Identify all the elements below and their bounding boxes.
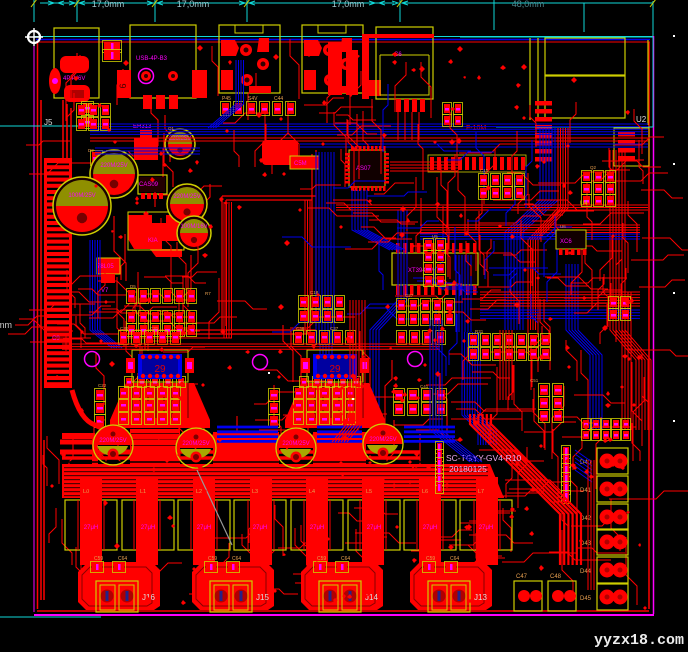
svg-text:L7: L7 [478, 489, 484, 495]
svg-text:C64: C64 [118, 556, 127, 562]
svg-text:17,0mm: 17,0mm [177, 0, 210, 9]
svg-text:L2: L2 [196, 489, 202, 495]
svg-text:XC6: XC6 [560, 239, 572, 245]
svg-text:C44: C44 [274, 96, 283, 102]
svg-text:U5: U5 [432, 234, 438, 239]
svg-text:C59: C59 [208, 556, 217, 562]
svg-text:L5: L5 [366, 489, 372, 495]
svg-text:J5: J5 [44, 118, 53, 127]
svg-text:U2: U2 [636, 115, 647, 124]
svg-text:J14: J14 [365, 593, 378, 602]
svg-text:S4V: S4V [248, 96, 258, 102]
svg-text:D41: D41 [580, 488, 592, 494]
svg-text:AS07: AS07 [356, 166, 371, 172]
svg-text:27μH: 27μH [141, 525, 155, 531]
svg-text:100M/16V: 100M/16V [180, 224, 207, 230]
svg-text:100M/25V: 100M/25V [68, 193, 95, 199]
svg-text:F-10M: F-10M [466, 125, 486, 132]
svg-text:C27: C27 [405, 293, 414, 298]
svg-text:P45: P45 [222, 96, 231, 102]
svg-text:D2: D2 [88, 148, 94, 153]
svg-text:27μH: 27μH [197, 525, 211, 531]
svg-text:C64: C64 [341, 556, 350, 562]
svg-text:Q1: Q1 [168, 126, 175, 131]
svg-text:17,0mm: 17,0mm [332, 0, 365, 9]
svg-text:C22: C22 [98, 383, 107, 388]
svg-text:C59: C59 [317, 556, 326, 562]
svg-text:SC-TGYY-GV4-R10: SC-TGYY-GV4-R10 [446, 453, 522, 463]
svg-text:L3: L3 [252, 489, 258, 495]
svg-text:27μH: 27μH [423, 525, 437, 531]
svg-text:17,0mm: 17,0mm [92, 0, 125, 9]
svg-text:29: 29 [329, 364, 341, 375]
svg-text:L4: L4 [309, 489, 315, 495]
svg-text:C64: C64 [450, 556, 459, 562]
svg-text:D45: D45 [580, 596, 592, 602]
svg-text:48,0mm: 48,0mm [512, 0, 545, 9]
svg-text:27μH: 27μH [479, 525, 493, 531]
svg-text:C15: C15 [480, 168, 489, 173]
svg-text:220M/25V: 220M/25V [99, 438, 126, 444]
svg-text:J15: J15 [256, 593, 269, 602]
svg-text:U4: U4 [580, 201, 588, 207]
svg-text:27μH: 27μH [253, 525, 267, 531]
svg-text:C47: C47 [516, 574, 528, 580]
svg-text:D44: D44 [580, 569, 592, 575]
svg-text:L6: L6 [422, 489, 428, 495]
svg-text:R31: R31 [475, 329, 484, 334]
svg-text:27μH: 27μH [367, 525, 381, 531]
svg-text:6: 6 [118, 83, 128, 88]
svg-text:V7: V7 [101, 288, 109, 294]
svg-text:27μH: 27μH [84, 525, 98, 531]
svg-text:CAS09: CAS09 [139, 182, 159, 188]
svg-text:C48: C48 [550, 574, 562, 580]
svg-text:KIA: KIA [148, 238, 158, 244]
svg-text:C59: C59 [426, 556, 435, 562]
svg-text:29: 29 [154, 364, 166, 375]
svg-text:USB-4P-B3: USB-4P-B3 [136, 56, 168, 62]
svg-text:220M/25V: 220M/25V [182, 441, 209, 447]
svg-text:27μH: 27μH [310, 525, 324, 531]
svg-text:J13: J13 [474, 593, 487, 602]
svg-text:Q2: Q2 [590, 165, 597, 170]
svg-text:U6: U6 [560, 224, 566, 229]
svg-text:220M/25V: 220M/25V [369, 437, 396, 443]
svg-text:220M/25V: 220M/25V [100, 163, 127, 169]
svg-text:20180125: 20180125 [449, 464, 487, 474]
svg-text:C9: C9 [52, 336, 60, 342]
svg-text:D5: D5 [130, 284, 136, 289]
svg-text:yyzx18.com: yyzx18.com [594, 632, 684, 649]
svg-text:mm: mm [0, 320, 12, 330]
svg-text:L1: L1 [140, 489, 146, 495]
svg-text:C51: C51 [530, 378, 539, 383]
svg-text:C59: C59 [94, 556, 103, 562]
svg-text:R7: R7 [205, 291, 211, 296]
svg-text:220M/25V: 220M/25V [173, 194, 200, 200]
svg-text:C5M: C5M [294, 161, 307, 167]
svg-text:C64: C64 [232, 556, 241, 562]
